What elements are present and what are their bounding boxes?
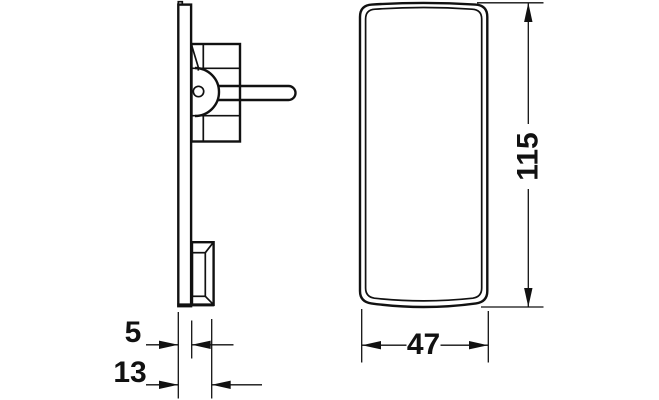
arrowhead-left-pointing [212,381,231,389]
pivot-semicircle [195,68,219,116]
arrowhead-left [362,341,381,349]
catch-bevel-bottom [205,296,212,304]
side-view-back-plate [178,5,191,307]
arrowhead-right-pointing [159,341,178,349]
technical-drawing-canvas: 115 47 5 13 [0,0,659,400]
dim-115-label: 115 [512,132,545,180]
arrowhead-down [524,288,532,307]
side-view [177,2,295,307]
front-view [360,3,487,307]
dimension-47: 47 [362,309,489,363]
catch-bevel-top [205,243,212,253]
arrowhead-right-pointing [159,381,178,389]
pin-rounded-end [289,86,296,100]
dim-5-label: 5 [125,316,142,349]
catch-front-face [192,253,205,297]
arrowhead-left-pointing [192,341,211,349]
dim-47-label: 47 [407,328,440,361]
cap-outer-outline [360,3,487,307]
arrowhead-up [524,3,532,22]
catch-block [192,242,214,305]
clip-housing [192,44,241,142]
arrowhead-right [469,341,488,349]
dim-13-label: 13 [113,356,146,389]
clip-mechanism [192,44,296,142]
spring-pin [218,86,296,100]
pivot-hole [193,86,203,96]
cap-inner-outline [366,8,482,301]
technical-drawing: 115 47 5 13 [0,0,659,400]
